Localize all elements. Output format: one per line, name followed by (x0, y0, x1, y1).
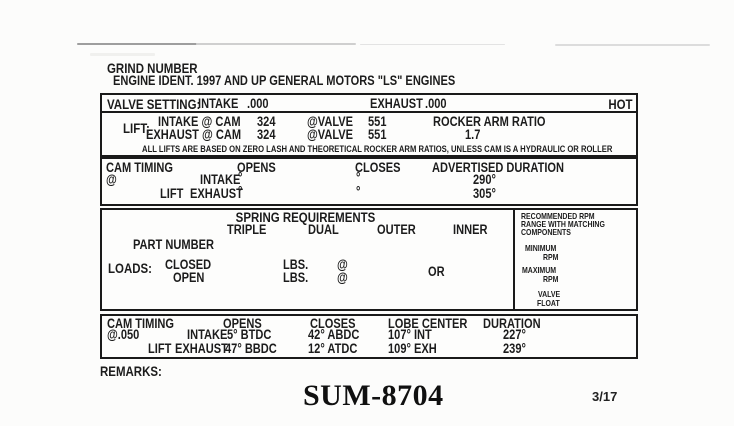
rpm-panel-divider (513, 210, 515, 309)
intake-050-opens: 5° BTDC (227, 328, 271, 342)
rocker-arm-ratio-label: ROCKER ARM RATIO (433, 115, 546, 129)
cam-timing-050-section: CAM TIMING OPENS CLOSES LOBE CENTER DURA… (100, 314, 638, 359)
minimum-rpm-unit: RPM (543, 253, 558, 262)
spring-open-label: OPEN (173, 271, 204, 285)
lift-exhaust-valve-value: 551 (368, 128, 386, 142)
scan-artifact-line (360, 44, 505, 45)
spring-col-inner: INNER (453, 223, 487, 237)
valve-setting-section: VALVE SETTING: INTAKE .000 EXHAUST .000 … (100, 93, 638, 113)
rocker-arm-ratio-value: 1.7 (465, 128, 480, 142)
spring-col-dual: DUAL (308, 223, 339, 237)
spring-loads-label: LOADS: (108, 261, 152, 275)
cam-timing-adv-exhaust-opens: ° (238, 185, 242, 199)
spring-col-triple: TRIPLE (227, 223, 266, 237)
spring-col-outer: OUTER (377, 223, 416, 237)
lift-section: LIFT: INTAKE @ CAM 324 @VALVE 551 ROCKER… (100, 111, 638, 157)
valve-setting-intake-label: INTAKE (198, 97, 238, 111)
cam-timing-adv-opens-header: OPENS (237, 161, 276, 175)
intake-lobe-center: 107° INT (388, 328, 432, 342)
page-reference: 3/17 (592, 390, 617, 403)
spring-open-at-symbol: @ (337, 271, 348, 285)
cam-timing-adv-lift-label: LIFT (160, 187, 183, 201)
cam-timing-adv-intake-closes: ° (356, 171, 360, 185)
exhaust-050-closes: 12° ATDC (308, 342, 357, 356)
cam-timing-050-at-value: @.050 (107, 328, 139, 342)
intake-050-closes: 42° ABDC (308, 328, 359, 342)
cam-timing-adv-exhaust-label: EXHAUST (190, 187, 243, 201)
valve-setting-intake-value: .000 (247, 97, 269, 111)
cam-timing-adv-closes-header: CLOSES (355, 161, 401, 175)
cam-timing-050-exhaust-label: EXHAUST (175, 342, 228, 356)
rpm-panel-heading-3: COMPONENTS (521, 228, 571, 237)
spring-open-lbs-label: LBS. (283, 271, 308, 285)
cam-part-number: SUM-8704 (303, 381, 444, 411)
spring-requirements-section: SPRING REQUIREMENTS TRIPLE DUAL OUTER IN… (100, 208, 638, 311)
valve-setting-exhaust-label: EXHAUST (370, 97, 423, 111)
spring-or-label: OR (428, 265, 445, 279)
exhaust-lobe-center: 109° EXH (388, 342, 437, 356)
cam-timing-adv-intake-label: INTAKE (200, 173, 240, 187)
lift-exhaust-cam-label: EXHAUST @ CAM (146, 128, 241, 142)
exhaust-050-opens: 47° BBDC (225, 342, 277, 356)
scan-artifact-smudge (90, 53, 155, 56)
valve-setting-hot-label: HOT (609, 97, 633, 111)
cam-timing-050-lift-label: LIFT (148, 342, 171, 356)
maximum-rpm-unit: RPM (543, 275, 558, 284)
spring-requirements-title: SPRING REQUIREMENTS (133, 211, 479, 225)
exhaust-advertised-duration: 305° (473, 187, 496, 201)
cam-timing-adv-exhaust-closes: ° (356, 185, 360, 199)
scan-artifact-line (77, 43, 197, 45)
intake-advertised-duration: 290° (473, 173, 496, 187)
cam-timing-advertised-section: CAM TIMING OPENS CLOSES ADVERTISED DURAT… (100, 157, 638, 206)
engine-ident-label: ENGINE IDENT. 1997 AND UP GENERAL MOTORS… (113, 74, 455, 88)
spring-part-number-label: PART NUMBER (133, 238, 214, 252)
lift-exhaust-atvalve-label: @VALVE (307, 128, 353, 142)
lift-exhaust-cam-value: 324 (257, 128, 275, 142)
scan-artifact-line (196, 43, 356, 45)
cam-timing-adv-intake-opens: ° (238, 171, 242, 185)
cam-timing-adv-at-symbol: @ (106, 173, 117, 187)
exhaust-050-duration: 239° (503, 342, 526, 356)
cam-timing-050-intake-label: INTAKE (187, 328, 227, 342)
advertised-duration-header: ADVERTISED DURATION (432, 161, 564, 175)
valve-setting-exhaust-value: .000 (425, 97, 447, 111)
valve-float-label-2: FLOAT (537, 299, 560, 308)
spec-card-scan: GRIND NUMBER ENGINE IDENT. 1997 AND UP G… (0, 0, 734, 426)
intake-050-duration: 227° (503, 328, 526, 342)
remarks-label: REMARKS: (100, 364, 162, 378)
lift-disclaimer: ALL LIFTS ARE BASED ON ZERO LASH AND THE… (142, 145, 596, 154)
valve-setting-label: VALVE SETTING: (107, 97, 200, 111)
scan-artifact-line (555, 44, 710, 46)
